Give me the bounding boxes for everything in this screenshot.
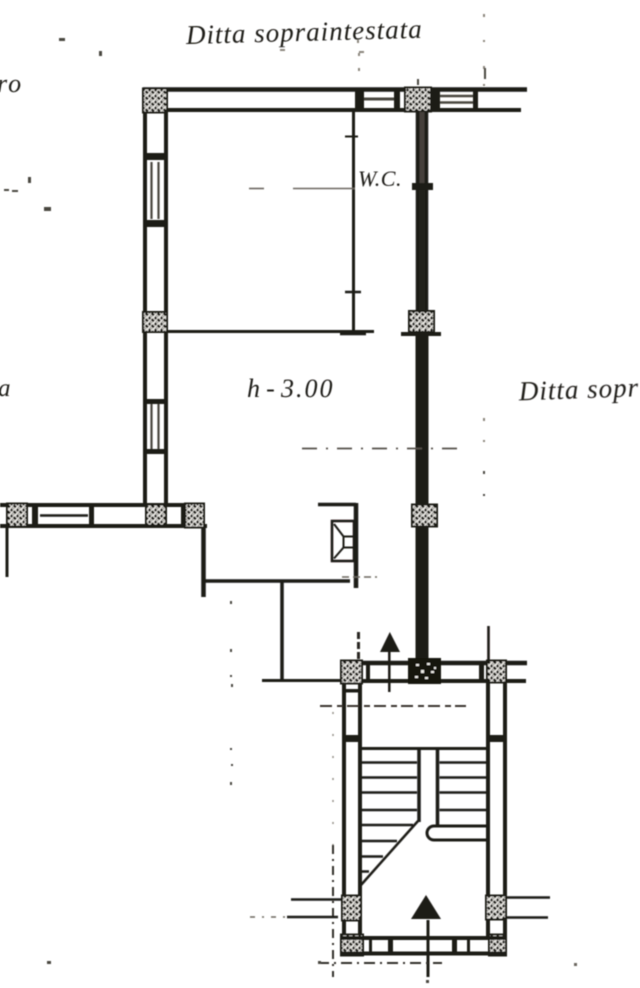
svg-text:h - 3.00: h - 3.00 — [247, 374, 335, 403]
svg-text:Ditta sopr: Ditta sopr — [517, 372, 639, 406]
svg-text:ta: ta — [0, 375, 10, 402]
svg-text:Ditta sopraintestata: Ditta sopraintestata — [185, 14, 423, 50]
svg-text:ro: ro — [0, 69, 23, 98]
svg-text:W.C.: W.C. — [358, 166, 402, 191]
